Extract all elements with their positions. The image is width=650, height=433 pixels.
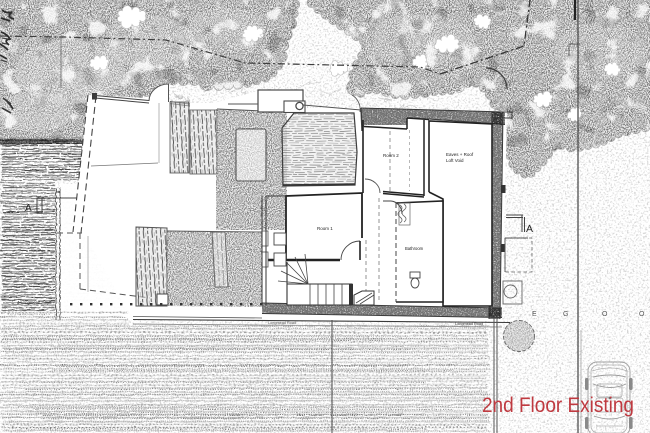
svg-text:4 Longmead Road: 4 Longmead Road — [17, 300, 52, 305]
svg-text:A: A — [25, 203, 32, 214]
svg-text:A: A — [526, 223, 533, 235]
svg-text:Loft Void: Loft Void — [446, 158, 464, 163]
svg-text:O: O — [639, 311, 645, 318]
svg-text:2nd Floor Existing: 2nd Floor Existing — [482, 393, 634, 417]
svg-text:O: O — [602, 311, 608, 318]
svg-text:E: E — [532, 311, 537, 318]
svg-text:Longmead Road: Longmead Road — [268, 321, 296, 325]
svg-text:G: G — [563, 311, 568, 318]
svg-text:Bathroom: Bathroom — [405, 246, 424, 251]
svg-text:Room 2: Room 2 — [383, 153, 399, 158]
svg-text:Eaves + Roof: Eaves + Roof — [446, 152, 474, 157]
svg-text:Room 1: Room 1 — [317, 226, 333, 231]
